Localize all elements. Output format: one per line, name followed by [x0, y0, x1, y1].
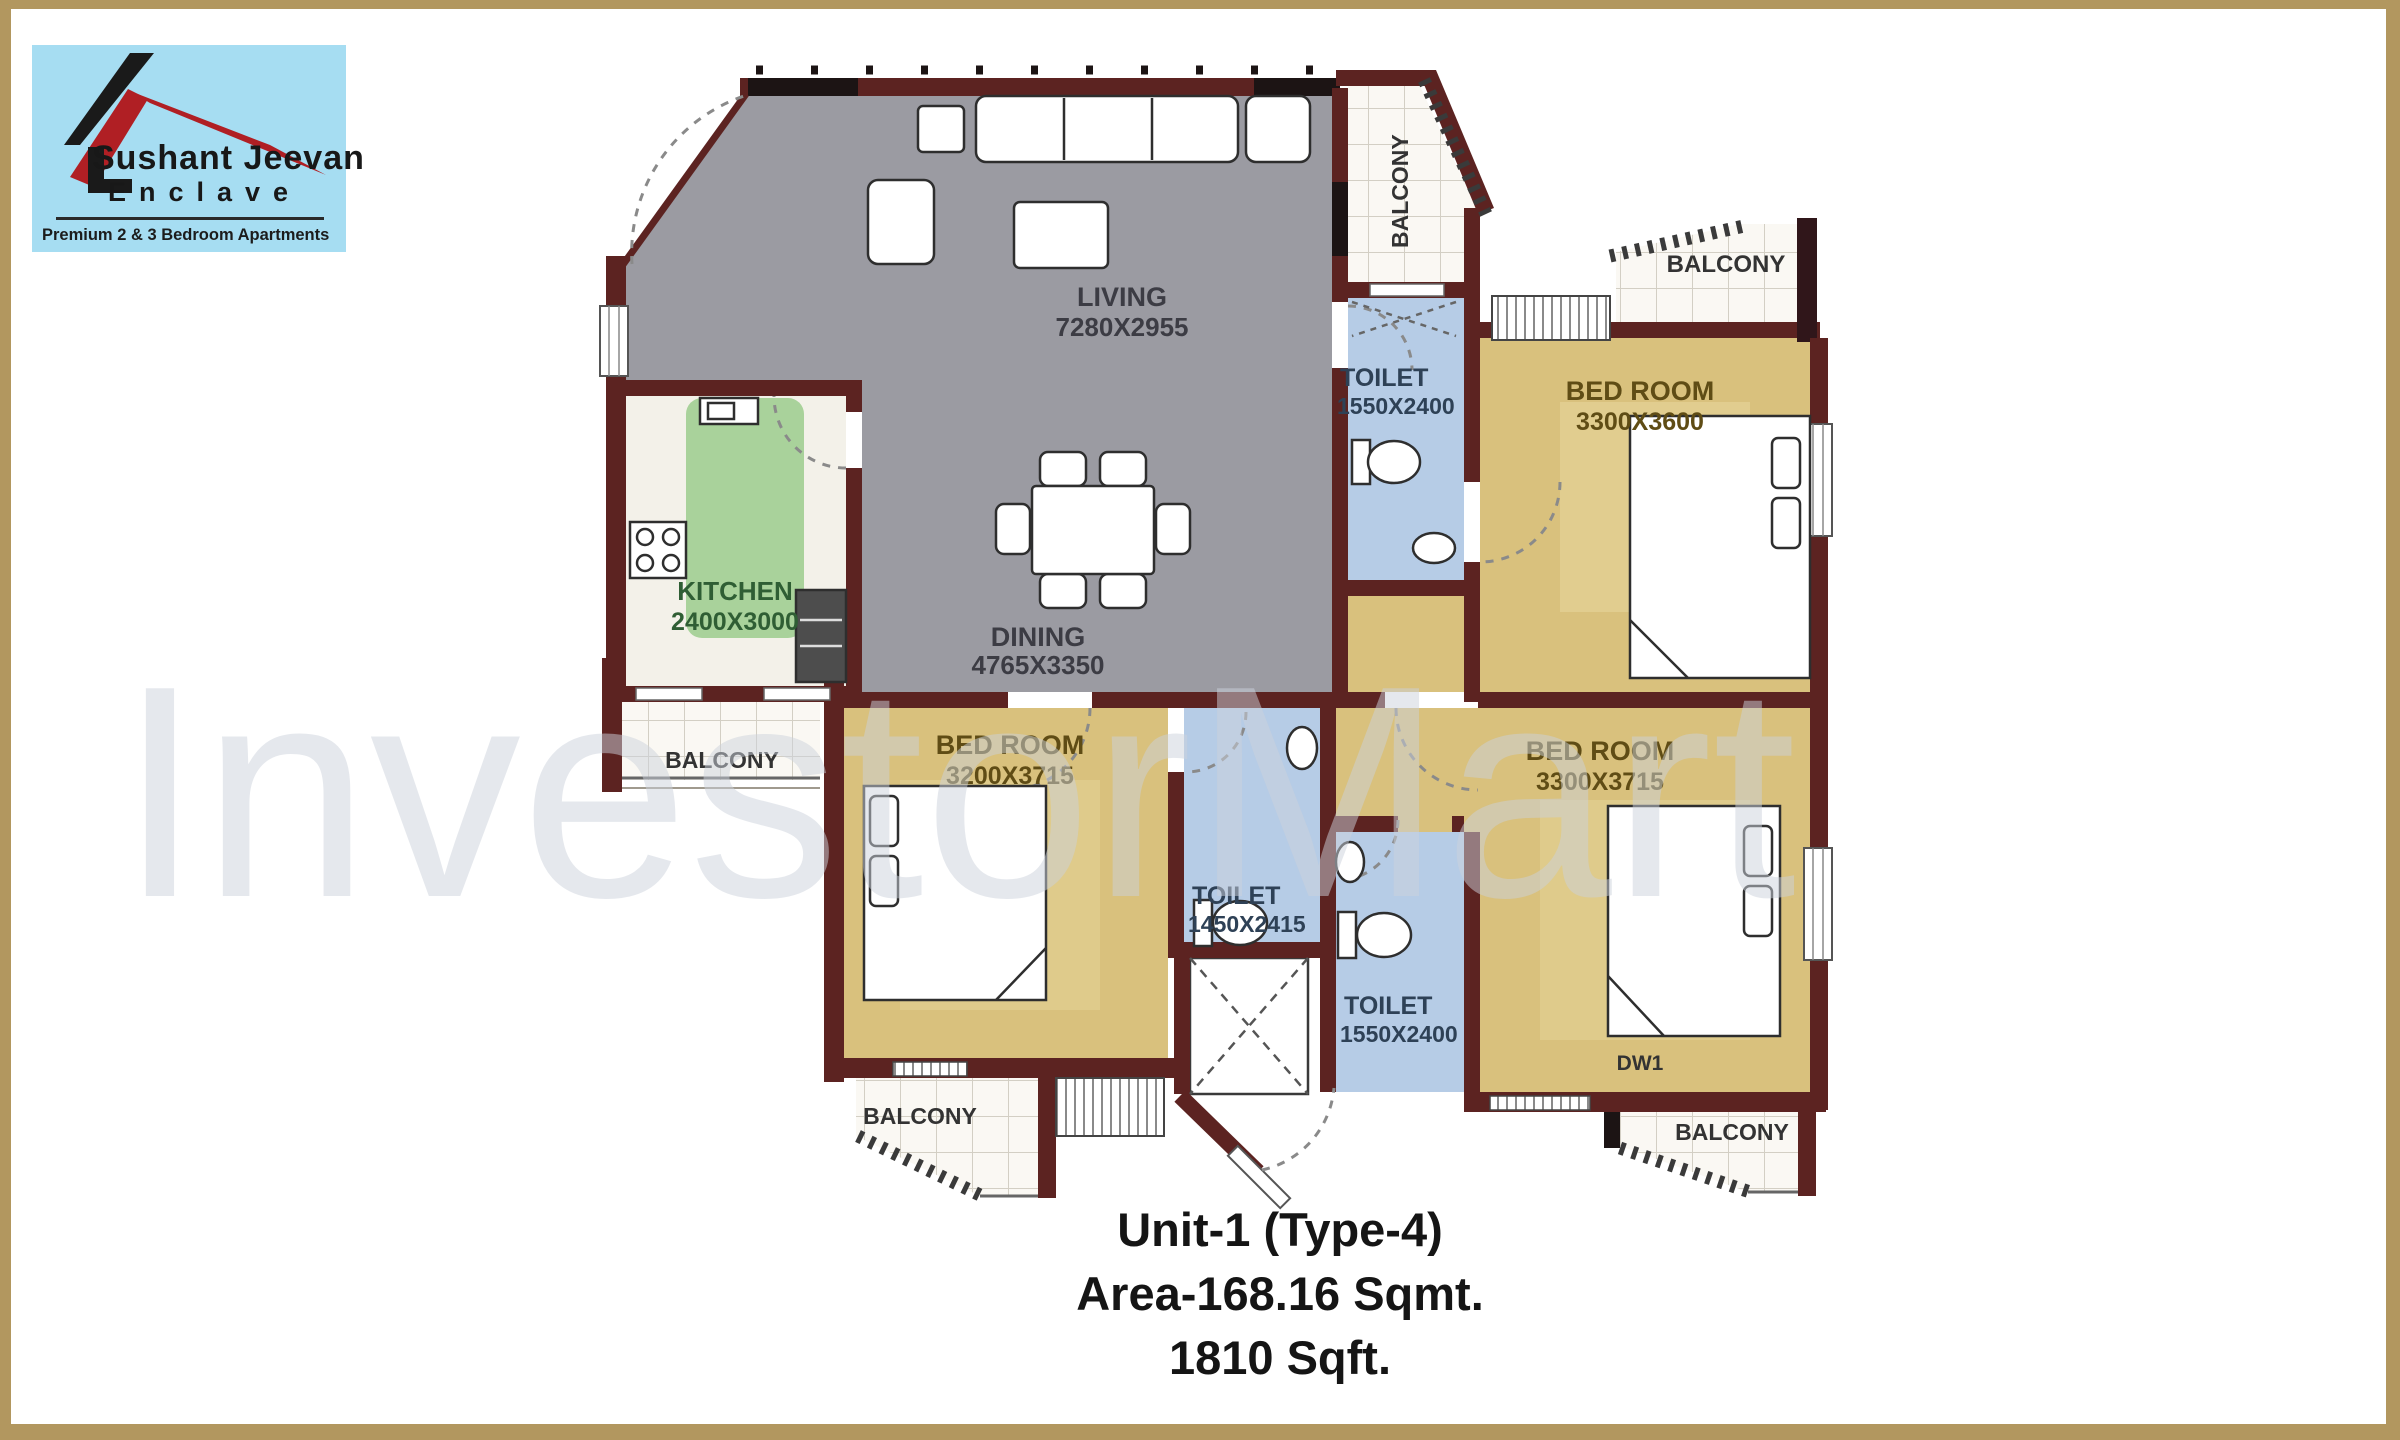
window-icon	[764, 688, 830, 700]
fridge	[796, 590, 846, 682]
dining-chair	[1156, 504, 1190, 554]
corridor-top-right-floor	[1348, 596, 1464, 692]
pillow	[870, 856, 898, 906]
bedroom-br-dim: 3300X3715	[1536, 768, 1664, 796]
balcony-bottom-left-label: BALCONY	[863, 1103, 977, 1129]
bedroom-bl-label: BED ROOM	[936, 730, 1085, 760]
pillow	[870, 796, 898, 846]
dining-chair	[1040, 574, 1086, 608]
stair-grill	[1056, 1078, 1164, 1136]
developer-logo: Sushant Jeevan Enclave Premium 2 & 3 Bed…	[32, 45, 346, 252]
logo-subtitle: Enclave	[108, 177, 301, 208]
sofa-long	[976, 96, 1238, 162]
striped-window-icon	[893, 1062, 967, 1076]
balcony-top-label: BALCONY	[1387, 134, 1413, 248]
unit-name: Unit-1 (Type-4)	[780, 1198, 1780, 1262]
logo-title: Sushant Jeevan	[92, 139, 365, 178]
window-icon	[600, 306, 628, 376]
bedroom-tr-label: BED ROOM	[1566, 376, 1715, 406]
side-table	[918, 106, 964, 152]
living-label: LIVING	[1077, 282, 1167, 312]
pillow	[1772, 438, 1800, 488]
unit-area-sqft: 1810 Sqft.	[780, 1326, 1780, 1390]
unit-area-sqmt: Area-168.16 Sqmt.	[780, 1262, 1780, 1326]
toilet-mid-dim: 1450X2415	[1188, 911, 1306, 937]
window-icon	[636, 688, 702, 700]
armchair	[868, 180, 934, 264]
dining-label: DINING	[991, 622, 1086, 652]
dining-dim: 4765X3350	[971, 650, 1104, 680]
pillow	[1744, 886, 1772, 936]
wc-bowl	[1368, 441, 1420, 483]
coffee-table	[1014, 202, 1108, 268]
wc-bowl	[1357, 913, 1411, 957]
striped-window-icon	[1492, 296, 1610, 340]
dining-chair	[996, 504, 1030, 554]
logo-tagline: Premium 2 & 3 Bedroom Apartments	[42, 226, 329, 245]
kitchen-label: KITCHEN	[677, 576, 793, 606]
washbasin	[1287, 727, 1317, 769]
balcony-left-label: BALCONY	[665, 747, 779, 773]
toilet-mid-label: TOILET	[1192, 882, 1280, 910]
balcony-bottom-left-floor	[856, 1078, 1038, 1196]
pillow	[1744, 826, 1772, 876]
living-dim: 7280X2955	[1055, 312, 1188, 342]
logo-divider	[56, 217, 324, 220]
duct-shaft	[1190, 958, 1308, 1094]
hob	[630, 522, 686, 578]
bedroom-br-label: BED ROOM	[1526, 736, 1675, 766]
sofa-corner	[1246, 96, 1310, 162]
entrance-lobby-arc	[1262, 1088, 1334, 1170]
balcony-top-right-floor	[1616, 224, 1797, 338]
striped-window-icon	[1490, 1096, 1590, 1110]
dining-chair	[1100, 452, 1146, 486]
toilet-bottom-dim: 1550X2400	[1340, 1021, 1458, 1047]
kitchen-dim: 2400X3000	[671, 608, 799, 636]
wc-tank	[1338, 912, 1356, 958]
pillow	[1772, 498, 1800, 548]
balcony-top-right-label: BALCONY	[1667, 251, 1786, 278]
dw1-label: DW1	[1617, 1052, 1664, 1075]
unit-info: Unit-1 (Type-4) Area-168.16 Sqmt. 1810 S…	[780, 1198, 1780, 1390]
washbasin	[1336, 842, 1364, 882]
bedroom-tr-dim: 3300X3600	[1576, 408, 1704, 436]
bedroom-bl-dim: 3200X3715	[946, 762, 1074, 790]
toilet-top-label: TOILET	[1340, 364, 1428, 392]
balcony-bottom-right-label: BALCONY	[1675, 1119, 1789, 1145]
dining-table	[1032, 486, 1154, 574]
toilet-bottom-label: TOILET	[1344, 992, 1432, 1020]
dining-chair	[1100, 574, 1146, 608]
toilet-top-dim: 1550X2400	[1337, 393, 1455, 419]
balcony-top-floor	[1348, 86, 1478, 282]
window-icon	[1370, 284, 1444, 296]
washbasin	[1413, 533, 1455, 563]
window-icon	[1804, 848, 1832, 960]
dining-chair	[1040, 452, 1086, 486]
